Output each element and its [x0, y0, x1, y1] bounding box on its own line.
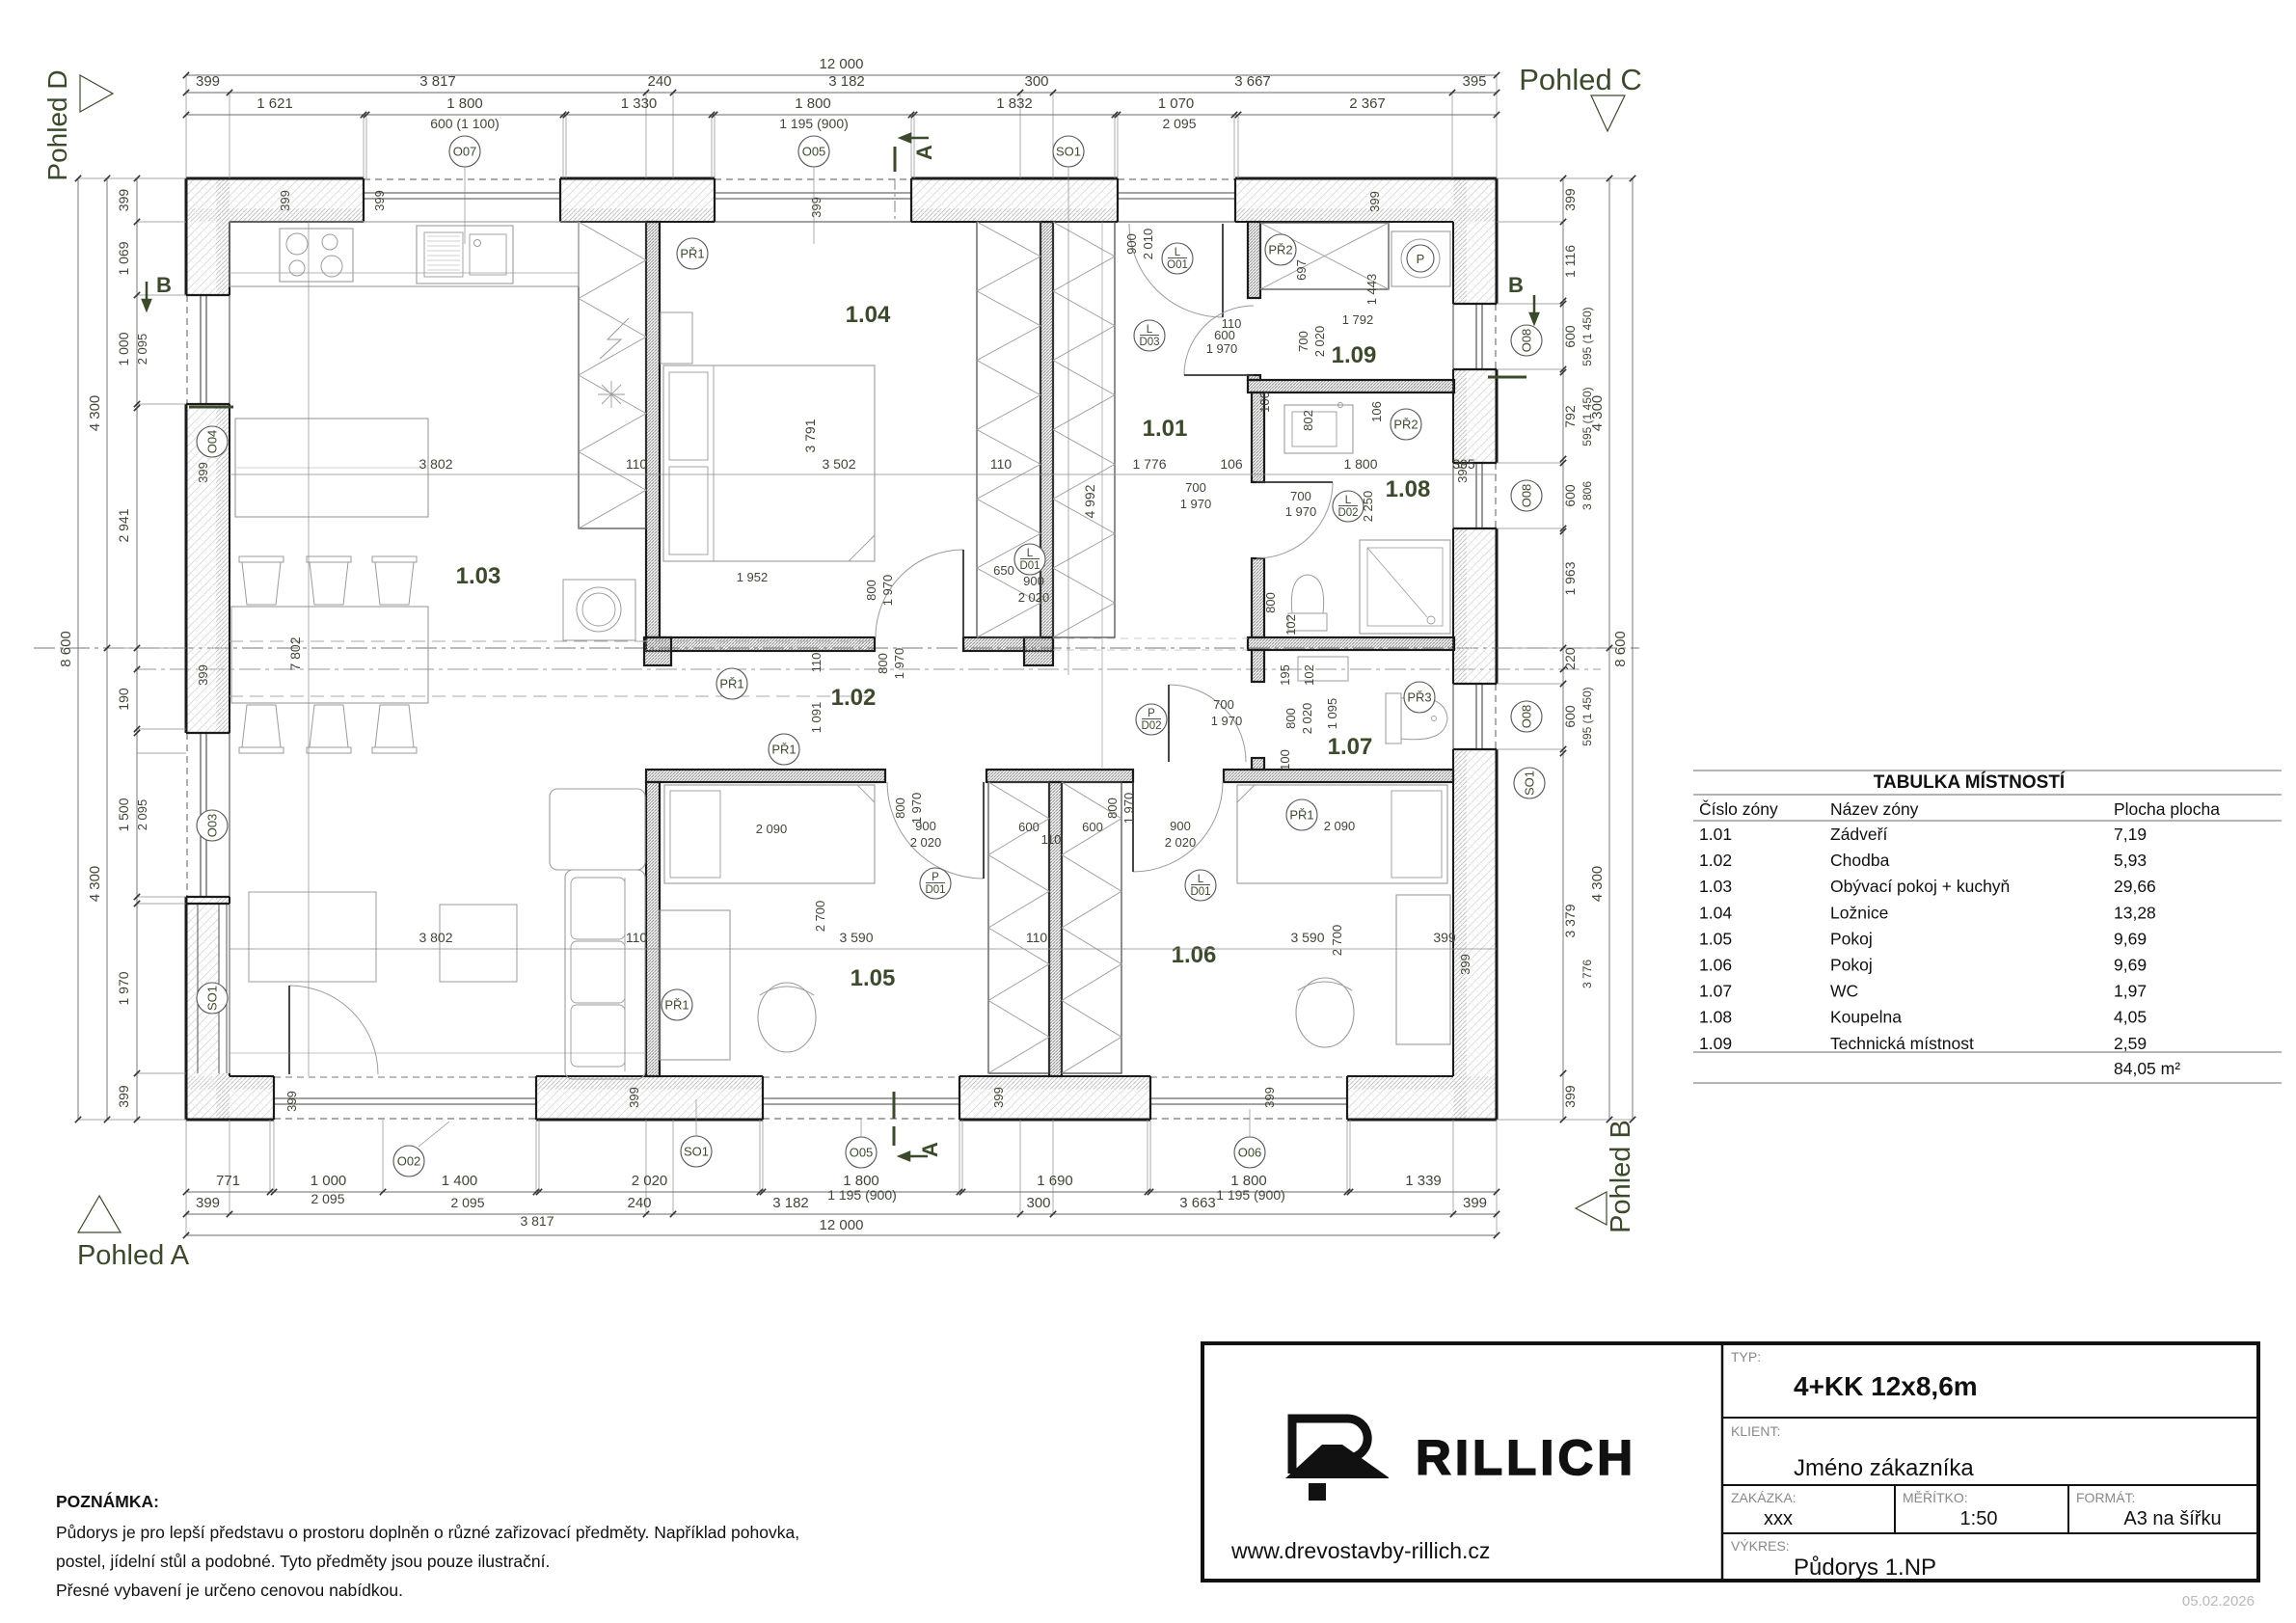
svg-text:O04: O04 — [205, 430, 220, 454]
svg-text:L: L — [1027, 548, 1034, 559]
svg-text:3 590: 3 590 — [1290, 930, 1324, 945]
svg-text:395: 395 — [1462, 73, 1486, 90]
svg-text:1 832: 1 832 — [996, 95, 1033, 112]
svg-text:Ložnice: Ložnice — [1830, 903, 1888, 922]
svg-text:1.08: 1.08 — [1699, 1008, 1732, 1027]
svg-text:102: 102 — [1302, 664, 1316, 686]
svg-text:3 802: 3 802 — [419, 930, 452, 945]
svg-text:2 941: 2 941 — [116, 508, 131, 542]
svg-text:1.02: 1.02 — [831, 685, 877, 711]
svg-text:PŘ2: PŘ2 — [1268, 243, 1292, 257]
svg-text:399: 399 — [278, 190, 292, 211]
svg-text:700: 700 — [1213, 697, 1234, 712]
svg-text:399: 399 — [627, 1087, 641, 1108]
svg-text:4 300: 4 300 — [87, 395, 103, 432]
svg-text:110: 110 — [990, 456, 1013, 472]
svg-text:Chodba: Chodba — [1830, 851, 1890, 870]
svg-text:399: 399 — [1562, 188, 1578, 211]
svg-text:399: 399 — [116, 189, 131, 212]
svg-text:Pohled B: Pohled B — [1606, 1120, 1636, 1233]
svg-text:110: 110 — [809, 653, 824, 673]
svg-text:P: P — [1417, 252, 1425, 266]
svg-text:190: 190 — [116, 688, 131, 711]
svg-text:399: 399 — [116, 1085, 131, 1108]
svg-text:D02: D02 — [1141, 720, 1161, 732]
svg-text:399: 399 — [1262, 1087, 1277, 1108]
svg-text:O07: O07 — [453, 145, 477, 159]
svg-text:D01: D01 — [1019, 560, 1040, 572]
svg-text:106: 106 — [1369, 401, 1384, 422]
svg-text:595 (1 450): 595 (1 450) — [1580, 687, 1594, 745]
svg-text:1,97: 1,97 — [2114, 982, 2147, 1001]
svg-text:1 776: 1 776 — [1132, 456, 1166, 472]
svg-text:800: 800 — [1263, 592, 1278, 613]
svg-text:D01: D01 — [1190, 886, 1210, 898]
svg-text:1 792: 1 792 — [1342, 312, 1374, 327]
svg-text:SO1: SO1 — [1523, 771, 1537, 796]
svg-text:VÝKRES:: VÝKRES: — [1731, 1538, 1790, 1554]
svg-text:900: 900 — [1023, 574, 1044, 588]
svg-text:1.06: 1.06 — [1172, 942, 1217, 968]
svg-text:05.02.2026: 05.02.2026 — [2182, 1593, 2255, 1609]
svg-text:Technická místnost: Technická místnost — [1830, 1034, 1974, 1053]
svg-text:1 195 (900): 1 195 (900) — [827, 1187, 897, 1203]
svg-text:700: 700 — [1290, 489, 1311, 503]
svg-text:399: 399 — [1562, 1085, 1578, 1108]
svg-text:1.07: 1.07 — [1699, 982, 1732, 1001]
svg-text:399: 399 — [372, 190, 387, 211]
svg-text:900: 900 — [1170, 819, 1191, 833]
svg-text:600: 600 — [1562, 484, 1578, 507]
svg-text:Přesné vybavení je určeno ceno: Přesné vybavení je určeno cenovou nabídk… — [56, 1581, 403, 1600]
svg-text:195: 195 — [1278, 664, 1292, 686]
svg-text:2 095: 2 095 — [1162, 116, 1196, 131]
svg-text:1 970: 1 970 — [1121, 793, 1136, 825]
svg-text:5,93: 5,93 — [2114, 851, 2147, 870]
svg-text:L: L — [1147, 324, 1153, 336]
svg-text:399: 399 — [991, 1087, 1006, 1108]
svg-text:300: 300 — [1026, 1195, 1050, 1211]
svg-text:SO1: SO1 — [684, 1145, 709, 1159]
svg-text:399: 399 — [196, 73, 220, 90]
svg-text:1 963: 1 963 — [1562, 561, 1578, 595]
svg-text:110: 110 — [626, 456, 648, 472]
svg-text:O08: O08 — [1520, 705, 1534, 729]
svg-text:600: 600 — [1018, 820, 1040, 834]
svg-text:SO1: SO1 — [1056, 145, 1081, 159]
svg-text:395: 395 — [1455, 462, 1470, 483]
svg-text:1.06: 1.06 — [1699, 956, 1732, 975]
svg-text:1.09: 1.09 — [1332, 342, 1377, 368]
svg-text:L: L — [1345, 495, 1352, 506]
svg-text:PŘ2: PŘ2 — [1393, 418, 1418, 432]
svg-text:1 339: 1 339 — [1405, 1173, 1442, 1189]
svg-text:3 776: 3 776 — [1580, 960, 1594, 988]
svg-text:4 300: 4 300 — [87, 866, 103, 903]
svg-text:399: 399 — [196, 462, 210, 483]
svg-text:Půdorys je pro lepší představu: Půdorys je pro lepší představu o prostor… — [56, 1523, 799, 1542]
svg-text:2 095: 2 095 — [311, 1191, 344, 1206]
svg-text:P: P — [1148, 708, 1155, 719]
svg-text:4 992: 4 992 — [1082, 484, 1097, 518]
svg-text:2 090: 2 090 — [756, 822, 788, 836]
svg-text:1 195 (900): 1 195 (900) — [779, 116, 849, 131]
svg-text:3 182: 3 182 — [772, 1195, 809, 1211]
svg-text:3 667: 3 667 — [1234, 73, 1271, 90]
svg-text:Pohled A: Pohled A — [77, 1240, 190, 1271]
svg-text:O01: O01 — [1167, 259, 1188, 271]
svg-text:800: 800 — [1105, 798, 1120, 819]
svg-text:1 095: 1 095 — [1325, 698, 1339, 730]
svg-text:106: 106 — [1257, 392, 1272, 413]
svg-text:postel, jídelní stůl a podobné: postel, jídelní stůl a podobné. Tyto pře… — [56, 1552, 550, 1571]
svg-text:1 443: 1 443 — [1364, 274, 1379, 306]
svg-text:650: 650 — [993, 563, 1014, 578]
svg-text:399: 399 — [196, 664, 210, 686]
svg-text:3 817: 3 817 — [419, 73, 456, 90]
svg-text:9,69: 9,69 — [2114, 956, 2147, 975]
svg-text:240: 240 — [627, 1195, 651, 1211]
svg-text:1.09: 1.09 — [1699, 1034, 1732, 1053]
svg-text:1 500: 1 500 — [116, 798, 131, 831]
svg-text:771: 771 — [216, 1173, 240, 1189]
svg-text:1.02: 1.02 — [1699, 851, 1732, 870]
svg-text:802: 802 — [1301, 410, 1315, 431]
svg-text:O05: O05 — [850, 1146, 874, 1160]
svg-text:Půdorys 1.NP: Půdorys 1.NP — [1794, 1555, 1936, 1581]
svg-text:792: 792 — [1562, 405, 1578, 428]
svg-text:3 663: 3 663 — [1179, 1195, 1216, 1211]
svg-text:PŘ1: PŘ1 — [680, 247, 704, 261]
svg-text:PŘ1: PŘ1 — [771, 743, 796, 757]
svg-text:TYP:: TYP: — [1731, 1349, 1761, 1365]
svg-text:MĚŘÍTKO:: MĚŘÍTKO: — [1903, 1490, 1968, 1505]
svg-text:1 970: 1 970 — [1180, 497, 1212, 511]
svg-text:D01: D01 — [925, 884, 945, 896]
svg-text:9,69: 9,69 — [2114, 929, 2147, 948]
svg-text:700: 700 — [1296, 331, 1310, 352]
svg-text:Pohled C: Pohled C — [1519, 63, 1642, 96]
svg-text:1 970: 1 970 — [880, 575, 895, 607]
svg-text:Pokoj: Pokoj — [1830, 929, 1873, 948]
svg-text:3 182: 3 182 — [828, 73, 865, 90]
svg-text:600: 600 — [1562, 705, 1578, 728]
svg-text:L: L — [1175, 247, 1181, 258]
svg-text:1 116: 1 116 — [1562, 245, 1578, 278]
svg-text:12 000: 12 000 — [820, 1217, 864, 1233]
svg-text:1 690: 1 690 — [1037, 1173, 1073, 1189]
svg-text:O03: O03 — [205, 814, 220, 838]
svg-text:1.01: 1.01 — [1699, 825, 1732, 844]
svg-text:KLIENT:: KLIENT: — [1731, 1423, 1780, 1439]
svg-text:800: 800 — [893, 798, 907, 819]
svg-text:7,19: 7,19 — [2114, 825, 2147, 844]
svg-text:1 070: 1 070 — [1158, 95, 1195, 112]
svg-text:2,59: 2,59 — [2114, 1034, 2147, 1053]
svg-text:800: 800 — [864, 580, 878, 601]
svg-text:PŘ1: PŘ1 — [664, 998, 689, 1013]
svg-text:O08: O08 — [1520, 484, 1534, 508]
svg-text:2 367: 2 367 — [1349, 95, 1386, 112]
svg-text:800: 800 — [876, 653, 890, 674]
svg-text:2 020: 2 020 — [1165, 835, 1197, 850]
svg-text:1 621: 1 621 — [257, 95, 293, 112]
svg-text:399: 399 — [809, 197, 824, 218]
svg-text:110: 110 — [1041, 832, 1062, 847]
svg-text:1.08: 1.08 — [1386, 476, 1431, 502]
svg-text:Jméno zákazníka: Jméno zákazníka — [1794, 1455, 1974, 1481]
svg-text:1.05: 1.05 — [1699, 929, 1732, 948]
svg-text:399: 399 — [1463, 1195, 1487, 1211]
svg-text:3 817: 3 817 — [520, 1213, 554, 1229]
svg-text:Zádveří: Zádveří — [1830, 825, 1887, 844]
svg-text:2 010: 2 010 — [1141, 229, 1155, 260]
svg-text:2 095: 2 095 — [450, 1195, 484, 1210]
svg-text:8 600: 8 600 — [1612, 631, 1629, 667]
svg-text:Číslo zóny: Číslo zóny — [1699, 798, 1778, 819]
svg-text:RILLICH: RILLICH — [1416, 1430, 1636, 1485]
svg-text:4 300: 4 300 — [1589, 866, 1606, 903]
svg-text:D02: D02 — [1337, 507, 1358, 519]
svg-text:1 330: 1 330 — [621, 95, 658, 112]
svg-text:1 800: 1 800 — [446, 95, 483, 112]
svg-text:3 379: 3 379 — [1562, 904, 1578, 937]
svg-text:399: 399 — [1458, 954, 1472, 975]
svg-text:399: 399 — [196, 1195, 220, 1211]
svg-text:Plocha plocha: Plocha plocha — [2114, 799, 2220, 819]
svg-text:Obývací pokoj + kuchyň: Obývací pokoj + kuchyň — [1830, 877, 2010, 896]
svg-text:1 970: 1 970 — [1211, 714, 1243, 728]
svg-text:1 970: 1 970 — [1285, 504, 1317, 519]
svg-text:A3 na šířku: A3 na šířku — [2123, 1508, 2221, 1529]
svg-text:1 800: 1 800 — [1343, 456, 1377, 472]
svg-text:3 791: 3 791 — [802, 419, 818, 452]
svg-text:B: B — [156, 273, 172, 297]
svg-text:PŘ1: PŘ1 — [719, 677, 743, 691]
svg-text:3 502: 3 502 — [822, 456, 855, 472]
svg-text:13,28: 13,28 — [2114, 903, 2156, 922]
svg-text:xxx: xxx — [1764, 1508, 1793, 1529]
svg-text:2 020: 2 020 — [1018, 590, 1050, 605]
svg-text:2 250: 2 250 — [1361, 491, 1375, 523]
svg-text:1 000: 1 000 — [311, 1173, 347, 1189]
svg-text:4 300: 4 300 — [1589, 395, 1606, 432]
svg-text:1 970: 1 970 — [116, 971, 131, 1005]
svg-text:O05: O05 — [802, 145, 826, 159]
svg-text:2 700: 2 700 — [813, 901, 827, 933]
svg-text:A: A — [912, 145, 936, 160]
svg-text:3 590: 3 590 — [839, 930, 873, 945]
svg-text:100: 100 — [1278, 749, 1292, 771]
svg-text:1 970: 1 970 — [1206, 341, 1238, 356]
svg-text:697: 697 — [1294, 259, 1309, 281]
svg-text:2 090: 2 090 — [1324, 819, 1356, 833]
svg-text:1.03: 1.03 — [456, 563, 501, 589]
svg-text:600: 600 — [1082, 820, 1103, 834]
svg-text:D03: D03 — [1139, 337, 1159, 348]
svg-text:110: 110 — [1026, 930, 1048, 945]
svg-text:1 195 (900): 1 195 (900) — [1216, 1187, 1285, 1203]
svg-text:1.07: 1.07 — [1328, 734, 1373, 760]
svg-text:B: B — [1508, 273, 1524, 297]
svg-text:12 000: 12 000 — [820, 56, 864, 72]
svg-text:1 000: 1 000 — [116, 332, 131, 365]
svg-text:1.01: 1.01 — [1143, 416, 1188, 442]
svg-text:1.03: 1.03 — [1699, 877, 1732, 896]
svg-text:110: 110 — [626, 930, 648, 945]
svg-text:Koupelna: Koupelna — [1830, 1008, 1902, 1027]
svg-text:P: P — [932, 872, 939, 883]
svg-text:1 970: 1 970 — [909, 793, 924, 825]
svg-text:600: 600 — [1214, 328, 1235, 342]
svg-text:7 802: 7 802 — [287, 636, 303, 670]
svg-text:399: 399 — [1433, 930, 1456, 945]
svg-text:1 800: 1 800 — [795, 95, 831, 112]
svg-text:1 400: 1 400 — [442, 1173, 478, 1189]
svg-text:PŘ3: PŘ3 — [1407, 690, 1431, 705]
svg-text:600 (1 100): 600 (1 100) — [430, 116, 500, 131]
svg-text:240: 240 — [647, 73, 671, 90]
svg-text:ZAKÁZKA:: ZAKÁZKA: — [1731, 1490, 1796, 1505]
svg-text:L: L — [1198, 874, 1204, 885]
svg-text:1.05: 1.05 — [851, 965, 896, 991]
svg-text:www.drevostavby-rillich.cz: www.drevostavby-rillich.cz — [1230, 1538, 1490, 1563]
svg-text:84,05 m²: 84,05 m² — [2114, 1059, 2180, 1078]
svg-text:WC: WC — [1830, 982, 1858, 1001]
svg-text:TABULKA MÍSTNOSTÍ: TABULKA MÍSTNOSTÍ — [1874, 771, 2066, 793]
svg-text:Pohled D: Pohled D — [42, 69, 72, 180]
svg-text:POZNÁMKA:: POZNÁMKA: — [56, 1491, 159, 1511]
svg-text:1.04: 1.04 — [846, 302, 891, 328]
svg-text:102: 102 — [1283, 614, 1298, 636]
svg-text:2 700: 2 700 — [1330, 925, 1344, 957]
svg-text:SO1: SO1 — [205, 986, 220, 1011]
svg-text:800: 800 — [1283, 708, 1298, 729]
svg-text:700: 700 — [1185, 480, 1206, 495]
svg-text:8 600: 8 600 — [58, 631, 74, 667]
svg-text:300: 300 — [1024, 73, 1048, 90]
svg-text:1 069: 1 069 — [116, 241, 131, 275]
svg-text:595 (1 450): 595 (1 450) — [1580, 307, 1594, 365]
svg-text:O08: O08 — [1520, 329, 1534, 353]
svg-text:4,05: 4,05 — [2114, 1008, 2147, 1027]
svg-text:4+KK 12x8,6m: 4+KK 12x8,6m — [1794, 1371, 1978, 1401]
svg-text:2 095: 2 095 — [135, 799, 149, 831]
svg-text:FORMÁT:: FORMÁT: — [2076, 1490, 2135, 1505]
svg-text:399: 399 — [284, 1091, 299, 1112]
svg-text:3 802: 3 802 — [419, 456, 452, 472]
svg-text:2 020: 2 020 — [1312, 326, 1327, 358]
svg-text:1 952: 1 952 — [737, 570, 769, 584]
svg-text:106: 106 — [1220, 456, 1243, 472]
svg-text:A: A — [918, 1142, 942, 1157]
svg-text:2 020: 2 020 — [1300, 703, 1314, 735]
svg-text:O06: O06 — [1238, 1146, 1262, 1160]
svg-text:1:50: 1:50 — [1960, 1508, 1998, 1529]
svg-text:Název zóny: Název zóny — [1830, 799, 1919, 819]
svg-text:600: 600 — [1562, 325, 1578, 348]
svg-text:PŘ1: PŘ1 — [1289, 808, 1313, 823]
svg-text:1 970: 1 970 — [892, 648, 906, 680]
svg-text:2 020: 2 020 — [632, 1173, 668, 1189]
svg-text:2 020: 2 020 — [910, 835, 942, 850]
svg-text:900: 900 — [1124, 233, 1139, 255]
svg-text:Pokoj: Pokoj — [1830, 956, 1873, 975]
svg-text:O02: O02 — [397, 1154, 421, 1169]
svg-text:220: 220 — [1562, 647, 1578, 670]
svg-text:3 806: 3 806 — [1580, 481, 1594, 510]
svg-text:399: 399 — [1367, 191, 1382, 212]
svg-text:29,66: 29,66 — [2114, 877, 2156, 896]
svg-text:2 095: 2 095 — [135, 334, 149, 365]
svg-text:1 091: 1 091 — [809, 702, 824, 734]
svg-text:1.04: 1.04 — [1699, 903, 1732, 922]
